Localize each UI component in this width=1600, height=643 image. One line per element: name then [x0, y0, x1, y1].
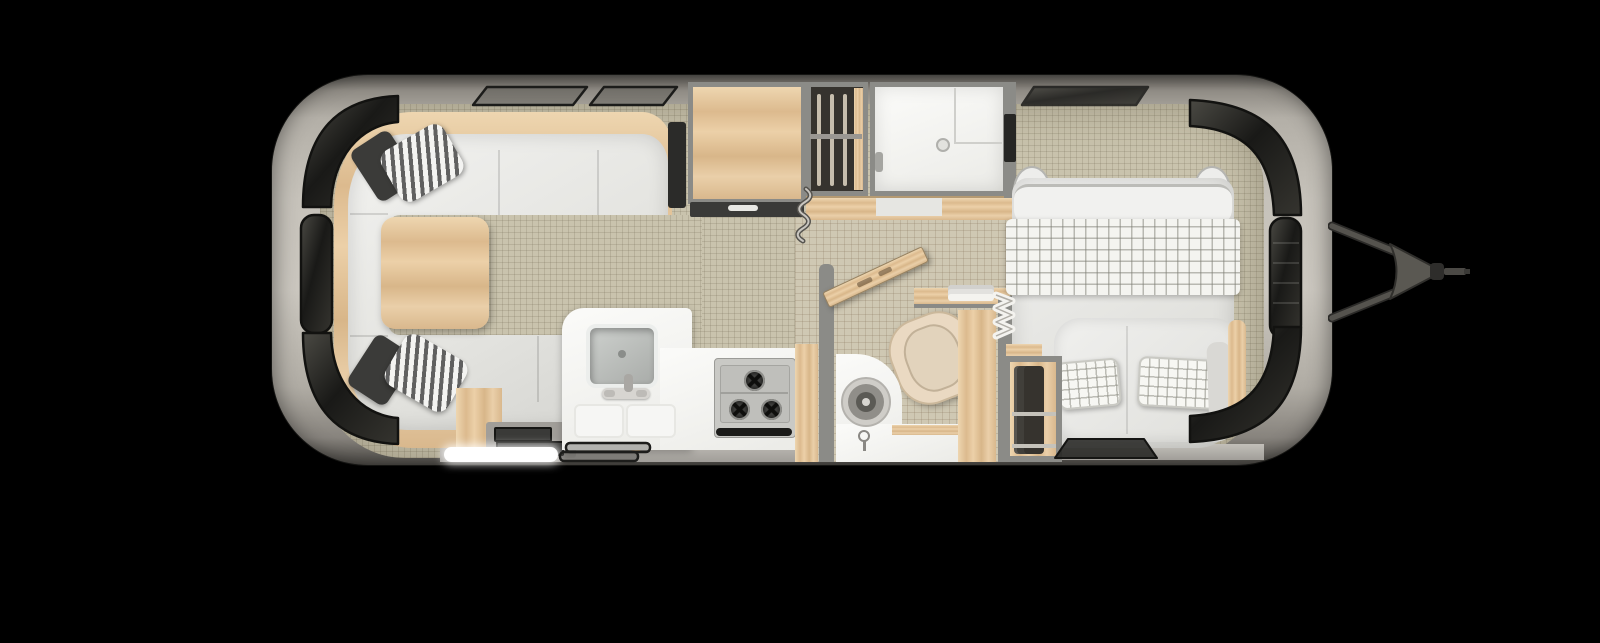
entry-step-outline: [560, 452, 638, 461]
window-top-outline: [473, 87, 587, 105]
window-top-outline: [590, 87, 677, 105]
hitch-rod: [1444, 268, 1466, 275]
floor-plan-stage: [0, 0, 1600, 643]
window-front-bottom-left: [303, 333, 398, 444]
window-rear-top-right: [1190, 100, 1301, 215]
hitch-rod-cap: [1464, 269, 1470, 274]
window-bottom-bedroom: [1055, 439, 1157, 458]
window-front-top-left: [303, 96, 398, 207]
window-top-bedroom: [1022, 87, 1148, 105]
window-rear-bottom-right: [1190, 327, 1301, 442]
hitch-coupler: [1430, 263, 1444, 280]
window-overlay: [272, 75, 1332, 465]
tow-hitch: [1328, 198, 1488, 348]
hitch-bar: [1332, 226, 1396, 252]
window-rear-mid-right: [1270, 218, 1301, 338]
window-front-mid-left: [301, 215, 332, 333]
hitch-bar: [1332, 292, 1396, 318]
entry-step-outline: [566, 443, 650, 452]
hitch-a-frame: [1390, 244, 1432, 299]
